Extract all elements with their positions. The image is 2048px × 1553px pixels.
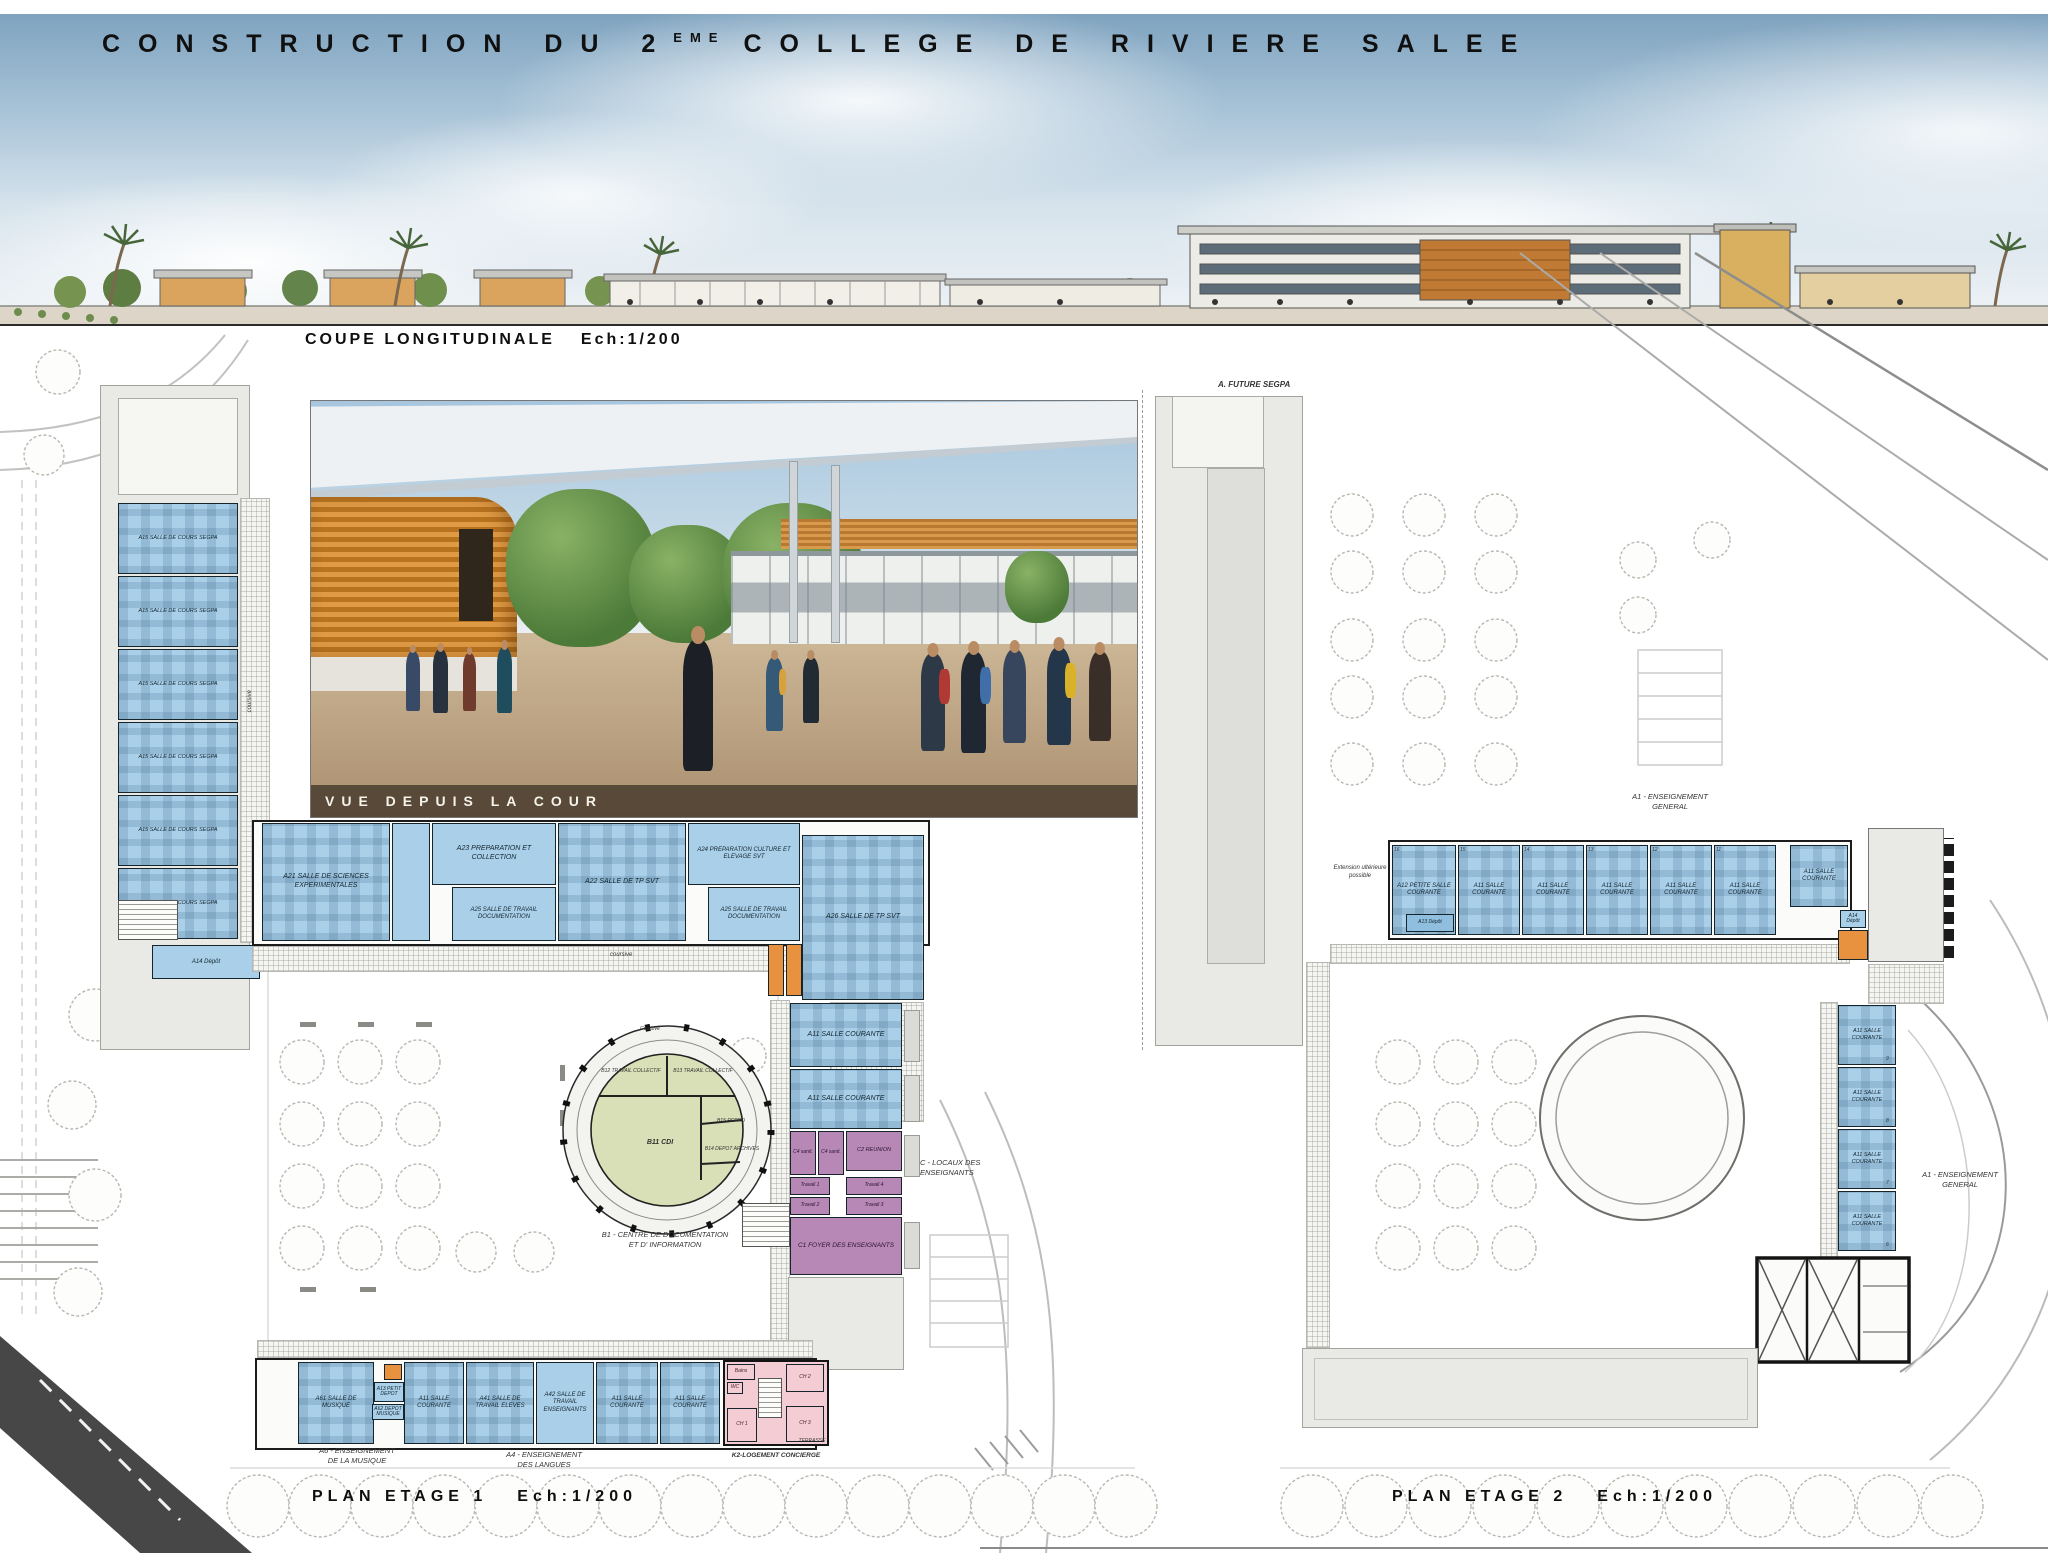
room-depot-a13: A13 Dépôt <box>1406 914 1454 932</box>
langues-line1: A4 - ENSEIGNEMENT <box>506 1450 582 1459</box>
room-a11: A11 SALLE COURANTE <box>404 1362 464 1444</box>
room-reunion: C2 REUNION <box>846 1131 902 1171</box>
room-travail-collectif: B12 TRAVAIL COLLECTIF <box>600 1068 662 1075</box>
room-travail-eleves: A41 SALLE DE TRAVAIL ELEVES <box>466 1362 534 1444</box>
student-figure <box>463 653 476 711</box>
room-a11: A11 SALLE COURANTE <box>1650 845 1712 935</box>
plan2-boundary-dashed <box>1142 390 1143 1050</box>
room-repro: B15 REPRO <box>706 1118 756 1125</box>
room-depot-a14: A14 Dépôt <box>1840 910 1866 928</box>
room-a11: A11 SALLE COURANTE <box>1586 845 1648 935</box>
locaux-line1: C - LOCAUX DES <box>920 1158 980 1167</box>
room-number: 8 <box>1886 1118 1889 1125</box>
room-sciences: A21 SALLE DE SCIENCES EXPERIMENTALES <box>262 823 390 941</box>
room-prep-small <box>392 823 430 941</box>
room-travail: Travail 1 <box>790 1177 830 1195</box>
concierge-caption: K2-LOGEMENT CONCIERGE <box>716 1452 836 1460</box>
lower-wing-roof-inner <box>1314 1358 1748 1420</box>
building-window <box>459 529 493 621</box>
plan1-caption-text: PLAN ETAGE 1 <box>312 1488 487 1505</box>
room-tp: A26 SALLE DE TP SVT <box>802 835 924 1000</box>
cdi-caption-line2: ET D' INFORMATION <box>629 1240 702 1249</box>
room-foyer: C1 FOYER DES ENSEIGNANTS <box>790 1217 902 1275</box>
perspective-view: VUE DEPUIS LA COUR <box>310 400 1138 818</box>
student-figure <box>1047 647 1071 745</box>
room-number: 9 <box>1886 1056 1889 1063</box>
extension-line1: Extension ultérieure <box>1333 865 1386 871</box>
coursive-corridor <box>252 946 792 972</box>
room-travail-doc: A25 SALLE DE TRAVAIL DOCUMENTATION <box>452 887 556 941</box>
sanitaires-orange <box>384 1364 402 1380</box>
general-line1: A1 - ENSEIGNEMENT <box>1632 792 1708 801</box>
room-ch2: CH 2 <box>786 1364 824 1392</box>
room-wc: WC <box>727 1382 743 1394</box>
stairs <box>758 1378 782 1418</box>
room-depot-musique: A62 DEPOT MUSIQUE <box>372 1404 404 1420</box>
extension-label: Extension ultérieurepossible <box>1322 865 1398 881</box>
langues-line2: DES LANGUES <box>517 1460 570 1469</box>
room-petit-depot: A13 PETIT DEPOT <box>374 1382 404 1402</box>
student-figure <box>803 657 819 723</box>
tree <box>1005 551 1069 623</box>
locaux-line2: ENSEIGNANTS <box>920 1168 974 1177</box>
hall-roof <box>1868 828 1944 962</box>
walkway-hatch <box>1306 962 1330 1348</box>
room-a11: A11 SALLE COURANTE <box>790 1069 902 1129</box>
room-segpa: A15 SALLE DE COURS SEGPA <box>118 722 238 793</box>
room-a11: A11 SALLE COURANTE <box>596 1362 658 1444</box>
general-line2: GENERAL <box>1942 1180 1978 1189</box>
room-cdi: B11 CDI <box>630 1138 690 1147</box>
room-number: 14 <box>1524 847 1530 854</box>
extension-line2: possible <box>1349 873 1371 879</box>
room-segpa: A15 SALLE DE COURS SEGPA <box>118 795 238 866</box>
future-segpa-label: A. FUTURE SEGPA <box>1218 380 1388 390</box>
canopy-column <box>831 465 840 643</box>
room-bains: Bains <box>727 1364 755 1380</box>
room-segpa: A15 SALLE DE COURS SEGPA <box>118 576 238 647</box>
sanitaires-orange <box>1838 930 1868 960</box>
plan1-caption: PLAN ETAGE 1Ech:1/200 <box>312 1488 637 1506</box>
langues-wing-label: A4 - ENSEIGNEMENTDES LANGUES <box>478 1450 610 1470</box>
room-number: 13 <box>1588 847 1594 854</box>
room-travail-doc: A25 SALLE DE TRAVAIL DOCUMENTATION <box>708 887 800 941</box>
student-figure <box>406 651 420 711</box>
segpa-wing-terrace <box>118 398 238 495</box>
student-figure <box>921 653 945 751</box>
sanitaires-orange <box>786 944 802 996</box>
cdi-caption-line1: B1 - CENTRE DE DOCUMENTATION <box>602 1230 728 1239</box>
room-ch3: CH 3 <box>786 1406 824 1442</box>
room-travail: Travail 2 <box>790 1197 830 1215</box>
room-number: 15 <box>1460 847 1466 854</box>
room-tp-svt: A22 SALLE DE TP SVT <box>558 823 686 941</box>
enseignement-general-label: A1 - ENSEIGNEMENTGENERAL <box>1902 1170 2018 1190</box>
balcony <box>904 1135 920 1177</box>
canopy-column <box>789 461 798 643</box>
room-number: 16 <box>1394 847 1400 854</box>
student-figure <box>497 647 512 713</box>
room-a11: A11 SALLE COURANTE <box>660 1362 720 1444</box>
student-figure <box>683 639 713 771</box>
room-depot-archives: B14 DEPOT ARCHIVES <box>704 1146 760 1153</box>
balcony <box>904 1075 920 1122</box>
stairs <box>118 900 178 940</box>
terrace-hatch <box>1868 964 1944 1004</box>
coursive-label: coursive <box>610 952 632 960</box>
perspective-caption-band: VUE DEPUIS LA COUR <box>311 785 1138 817</box>
student-figure <box>766 657 783 731</box>
musique-line2: DE LA MUSIQUE <box>328 1456 386 1465</box>
room-travail: Travail 4 <box>846 1177 902 1195</box>
room-preparation: A23 PREPARATION ET COLLECTION <box>432 823 556 885</box>
room-a11: A11 SALLE COURANTE <box>790 1003 902 1067</box>
technical-building <box>1755 1256 1911 1364</box>
room-number: 6 <box>1886 1242 1889 1249</box>
room-travail-enseignants: A42 SALLE DE TRAVAIL ENSEIGNANTS <box>536 1362 594 1444</box>
room-number: 7 <box>1886 1180 1889 1187</box>
perspective-caption: VUE DEPUIS LA COUR <box>325 793 603 809</box>
plan2-caption-text: PLAN ETAGE 2 <box>1392 1488 1567 1505</box>
segpa-roof-inner <box>1207 468 1265 964</box>
cdi-caption: B1 - CENTRE DE DOCUMENTATIONET D' INFORM… <box>570 1230 760 1250</box>
sanitaires-orange <box>768 944 784 996</box>
student-figure <box>1089 651 1111 741</box>
coursive-corridor <box>257 1340 813 1358</box>
musique-wing-label: A6 - ENSEIGNEMENTDE LA MUSIQUE <box>292 1446 422 1466</box>
plan2-scale: Ech:1/200 <box>1597 1488 1717 1505</box>
coursive-corridor <box>1820 1002 1838 1270</box>
room-travail-collectif: B13 TRAVAIL COLLECTIF <box>672 1068 734 1075</box>
terrasse-label: TERRASSE <box>792 1438 832 1445</box>
room-sanitaires: C4 sanit. <box>790 1131 816 1175</box>
student-figure <box>433 649 448 713</box>
room-segpa: A15 SALLE DE COURS SEGPA <box>118 503 238 574</box>
presentation-board: CONSTRUCTION DU 2EMECOLLEGE DE RIVIERE S… <box>0 0 2048 1553</box>
room-musique: A61 SALLE DE MUSIQUE <box>298 1362 374 1444</box>
student-figure <box>1003 649 1026 743</box>
room-a11: A11 SALLE COURANTE <box>1790 845 1848 907</box>
enseignement-general-label: A1 - ENSEIGNEMENTGENERAL <box>1605 792 1735 812</box>
musique-line1: A6 - ENSEIGNEMENT <box>319 1446 395 1455</box>
room-sanitaires: C4 sanit. <box>818 1131 844 1175</box>
room-number: 11 <box>1716 847 1721 854</box>
coursive-corridor <box>1330 944 1850 964</box>
room-depot-a14: A14 Dépôt <box>152 945 260 979</box>
plan1-scale: Ech:1/200 <box>517 1488 637 1505</box>
cdi-coursive-label: Coursive <box>640 1026 660 1033</box>
general-line1: A1 - ENSEIGNEMENT <box>1922 1170 1998 1179</box>
coursive-label: coursive <box>247 690 255 712</box>
room-prep-culture: A24 PREPARATION CULTURE ET ELEVAGE SVT <box>688 823 800 885</box>
student-figure <box>961 651 986 753</box>
general-line2: GENERAL <box>1652 802 1688 811</box>
room-a11: A11 SALLE COURANTE <box>1458 845 1520 935</box>
balcony <box>904 1222 920 1269</box>
cdi-roof-outline <box>1538 1014 1748 1224</box>
room-number: 12 <box>1652 847 1658 854</box>
balcony <box>904 1010 920 1062</box>
room-travail: Travail 3 <box>846 1197 902 1215</box>
louver-ticks <box>1944 838 1954 958</box>
plan2-caption: PLAN ETAGE 2Ech:1/200 <box>1392 1488 1717 1506</box>
segpa-roof-terrace <box>1172 396 1264 468</box>
room-ch1: CH 1 <box>727 1408 757 1442</box>
room-segpa: A15 SALLE DE COURS SEGPA <box>118 649 238 720</box>
locaux-enseignants-label: C - LOCAUX DESENSEIGNANTS <box>920 1158 1030 1178</box>
room-a11: A11 SALLE COURANTE <box>1714 845 1776 935</box>
room-a11: A11 SALLE COURANTE <box>1522 845 1584 935</box>
